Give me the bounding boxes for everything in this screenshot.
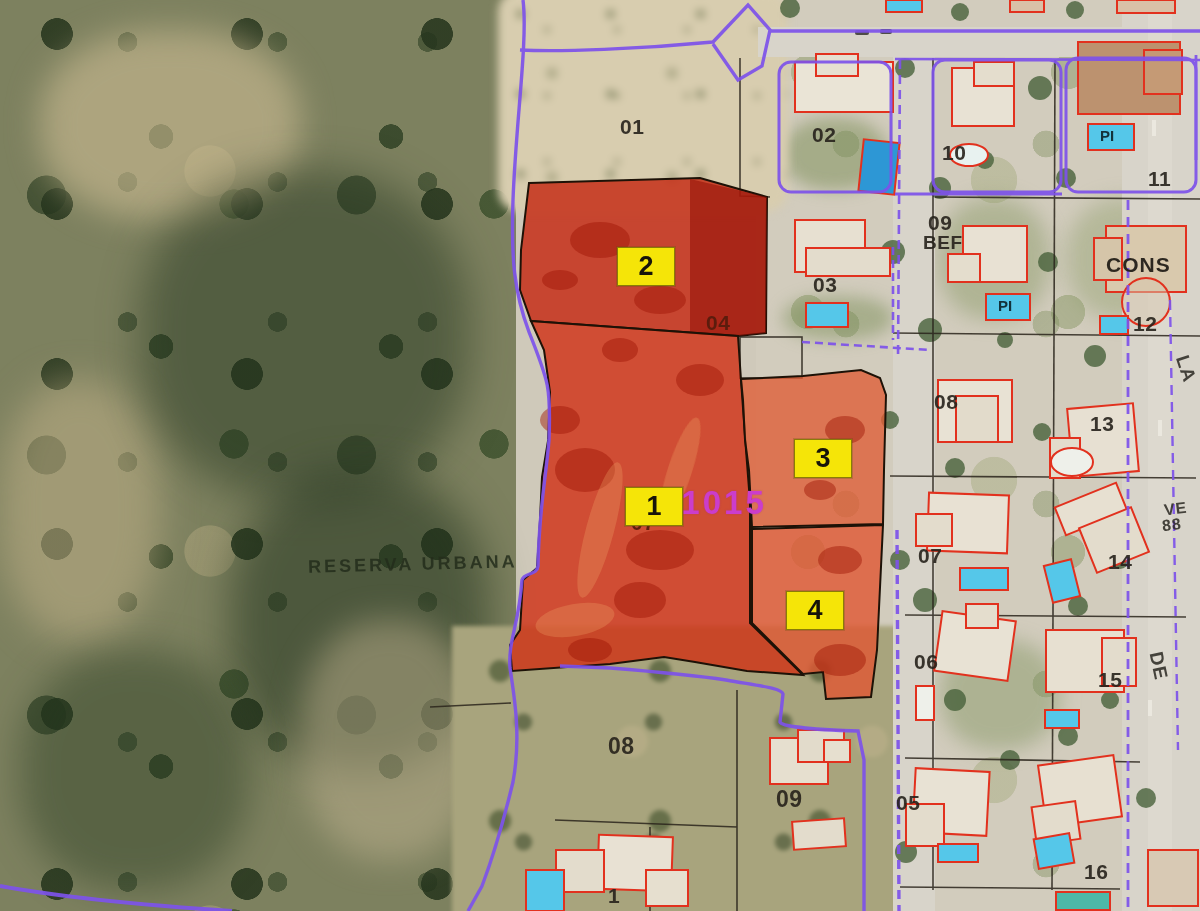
- parcel-number-09a: 09: [776, 786, 803, 813]
- highlight-label-2-text: 2: [638, 251, 653, 282]
- parcel-number-14: 14: [1108, 550, 1132, 574]
- parcel-number-12: 12: [1133, 312, 1157, 336]
- parcel-number-13: 13: [1090, 412, 1114, 436]
- highlight-label-3-text: 3: [815, 443, 830, 474]
- highlight-label-1[interactable]: 1: [625, 487, 683, 526]
- map-vector-overlay: [0, 0, 1200, 911]
- parcel-number-10: 10: [942, 141, 966, 165]
- parcel-number-08a: 08: [608, 733, 635, 760]
- parcel-number-11: 11: [1148, 167, 1171, 191]
- parcel-number-01: 01: [620, 115, 644, 139]
- parcel-number-16: 16: [1084, 860, 1108, 884]
- parcel-number-15: 15: [1098, 668, 1122, 692]
- annotation-cons: CONS: [1106, 253, 1171, 277]
- highlight-label-1-text: 1: [646, 491, 661, 522]
- annotation-pi-a: PI: [1100, 127, 1114, 144]
- parcel-number-07b: 07: [918, 544, 942, 568]
- parcel-number-05: 05: [896, 791, 920, 815]
- street-label-ve-number: 88: [1161, 515, 1183, 535]
- parcel-number-06: 06: [914, 650, 938, 674]
- highlight-label-4-text: 4: [807, 595, 822, 626]
- parcel-number-03: 03: [813, 273, 837, 297]
- parcel-number-partial: 1: [608, 884, 620, 908]
- parcel-number-02: 02: [812, 123, 836, 147]
- annotation-pi-b: PI: [998, 297, 1012, 314]
- parcel-number-08b: 08: [934, 390, 958, 414]
- highlight-label-3[interactable]: 3: [794, 439, 852, 478]
- aerial-map-canvas[interactable]: RESERVA URBANA 31015 2 1 3 4 01 02 03 04…: [0, 0, 1200, 911]
- highlight-label-4[interactable]: 4: [786, 591, 844, 630]
- highlight-label-2[interactable]: 2: [617, 247, 675, 286]
- annotation-bef: BEF: [923, 232, 963, 254]
- lane-markings: [1148, 120, 1162, 716]
- parcel-number-04: 04: [706, 311, 730, 335]
